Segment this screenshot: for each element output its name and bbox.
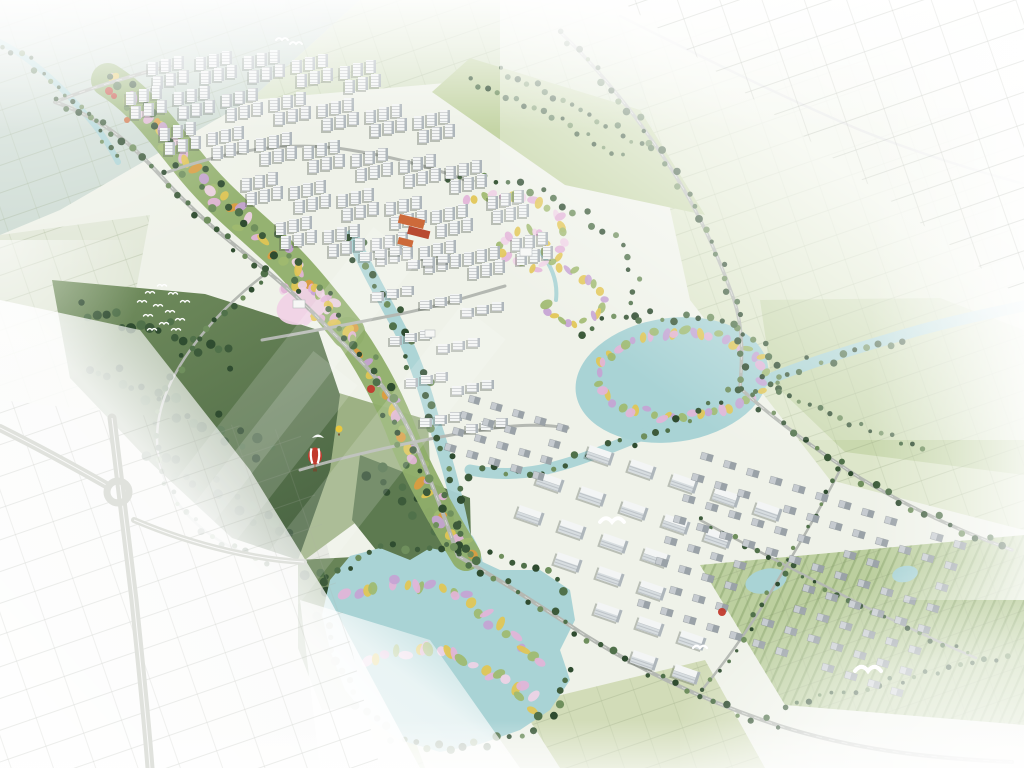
street-tree — [830, 478, 835, 483]
street-tree — [465, 562, 472, 569]
street-tree — [499, 554, 504, 559]
street-tree — [404, 365, 409, 370]
street-tree — [348, 566, 353, 571]
tower-side — [485, 174, 488, 187]
masterplan-aerial-render — [0, 0, 1024, 768]
tower-side — [377, 202, 380, 215]
street-tree — [212, 317, 217, 322]
street-tree — [699, 516, 703, 520]
street-tree — [389, 322, 397, 330]
street-tree — [446, 477, 453, 484]
forest-canopy-dot — [179, 337, 188, 346]
tower-side — [413, 174, 416, 187]
tower-side — [391, 162, 394, 175]
street-tree — [425, 474, 434, 483]
street-tree — [820, 502, 824, 506]
tower-side — [471, 218, 474, 231]
street-tree — [450, 453, 456, 459]
tower-side — [458, 221, 461, 234]
tower-side — [407, 199, 410, 212]
street-tree — [632, 443, 637, 448]
street-tree — [447, 510, 454, 517]
street-tree — [334, 567, 340, 573]
street-tree — [437, 446, 443, 452]
tower-side — [440, 210, 443, 223]
street-tree — [537, 606, 543, 612]
street-tree — [491, 576, 497, 582]
street-tree — [551, 467, 556, 472]
street-tree — [438, 505, 446, 513]
street-tree — [457, 521, 462, 526]
street-tree — [259, 281, 263, 285]
street-tree — [197, 336, 202, 341]
street-tree — [824, 454, 831, 461]
street-tree — [427, 545, 433, 551]
street-tree — [472, 556, 481, 565]
street-tree — [556, 700, 564, 708]
street-tree — [221, 310, 228, 317]
tower-side — [477, 266, 480, 279]
tower-side — [453, 207, 456, 220]
street-tree — [584, 638, 590, 644]
tower-side — [426, 171, 429, 184]
tower-side — [448, 254, 451, 263]
street-tree — [371, 368, 378, 375]
tower-side — [492, 380, 495, 389]
tower-side — [445, 224, 448, 237]
street-tree — [563, 620, 567, 624]
street-tree — [563, 463, 568, 468]
street-tree — [552, 608, 560, 616]
street-tree — [450, 543, 458, 551]
street-tree — [733, 534, 738, 539]
street-tree — [367, 550, 372, 555]
street-tree — [317, 285, 323, 291]
street-tree — [249, 287, 255, 293]
street-tree — [839, 459, 845, 465]
street-tree — [555, 577, 560, 582]
street-tree — [446, 466, 452, 472]
forest-canopy-dot — [206, 340, 215, 349]
tower-side — [397, 289, 400, 298]
street-tree — [661, 674, 666, 679]
street-tree — [462, 545, 470, 553]
street-tree — [504, 472, 509, 477]
tower-side — [386, 148, 389, 161]
forest-canopy-dot — [398, 497, 407, 506]
street-tree — [378, 543, 384, 549]
tower-side — [372, 188, 375, 201]
tower-side — [454, 240, 457, 253]
street-tree — [755, 548, 760, 553]
street-tree — [509, 560, 515, 566]
forest-canopy-dot — [215, 411, 222, 418]
street-tree — [397, 306, 404, 313]
forest-canopy-dot — [225, 345, 233, 353]
forest-canopy-dot — [155, 327, 161, 333]
tower-side — [454, 166, 457, 179]
park-pavilion — [293, 300, 305, 308]
street-tree — [505, 578, 511, 584]
masterplan-scene — [0, 0, 1024, 768]
street-tree — [441, 492, 447, 498]
tower-side — [472, 252, 475, 265]
tower-side — [439, 168, 442, 181]
tower-side — [427, 130, 430, 143]
tower-side — [485, 249, 488, 262]
street-tree — [487, 549, 492, 554]
street-tree — [433, 522, 439, 528]
tower-side — [472, 177, 475, 190]
street-tree — [373, 378, 381, 386]
street-tree — [355, 555, 361, 561]
street-tree — [390, 541, 396, 547]
street-tree — [858, 481, 864, 487]
tower-side — [421, 157, 424, 170]
tower-side — [420, 196, 423, 209]
street-tree — [557, 687, 564, 694]
street-tree — [457, 531, 463, 537]
tower-side — [476, 424, 479, 433]
street-tree — [571, 451, 578, 458]
tower-side — [487, 305, 490, 314]
street-tree — [240, 295, 245, 300]
street-tree — [525, 600, 530, 605]
street-tree — [610, 647, 618, 655]
street-tree — [178, 366, 185, 373]
tower-side — [378, 165, 381, 178]
street-tree — [444, 542, 449, 547]
street-tree — [179, 353, 184, 358]
tower-side — [496, 196, 499, 209]
street-tree — [477, 570, 484, 577]
street-tree — [568, 667, 574, 673]
forest-canopy-dot — [171, 334, 179, 342]
street-tree — [438, 546, 445, 553]
forest-canopy-dot — [399, 483, 407, 491]
balloon-basket — [313, 469, 317, 472]
forest-canopy-dot — [215, 346, 223, 354]
tower-side — [459, 254, 462, 267]
street-tree — [791, 546, 795, 550]
tower-side — [460, 294, 463, 303]
street-tree — [562, 678, 568, 684]
street-tree — [646, 673, 651, 678]
street-tree — [433, 435, 440, 442]
street-tree — [598, 642, 603, 647]
street-tree — [457, 486, 463, 492]
street-tree — [401, 546, 410, 555]
street-tree — [357, 352, 362, 357]
tower-side — [373, 151, 376, 164]
street-tree — [457, 496, 465, 504]
street-tree — [203, 326, 209, 332]
tower-side — [408, 160, 411, 173]
street-tree — [848, 471, 853, 476]
tower-side — [433, 257, 436, 266]
tower-side — [477, 383, 480, 392]
tower-side — [430, 300, 433, 309]
street-tree — [532, 564, 539, 571]
street-tree — [571, 631, 577, 637]
tower-side — [400, 336, 403, 345]
tower-side — [418, 260, 421, 269]
forest-canopy-dot — [408, 511, 417, 520]
street-tree — [387, 383, 395, 391]
street-tree — [190, 346, 196, 352]
street-tree — [521, 563, 527, 569]
street-tree — [373, 354, 379, 360]
tower-side — [434, 154, 437, 167]
tower-side — [459, 180, 462, 193]
tower-side — [445, 297, 448, 306]
tower-side — [498, 246, 501, 259]
street-tree — [545, 567, 552, 574]
forest-canopy-dot — [227, 366, 233, 372]
haze-left — [0, 240, 150, 410]
street-tree — [559, 587, 568, 596]
tower-side — [480, 160, 483, 173]
tower-side — [466, 204, 469, 217]
tower-side — [412, 286, 415, 295]
street-tree — [550, 712, 558, 720]
street-tree — [494, 180, 499, 185]
street-tree — [806, 525, 810, 529]
mini-balloon-basket — [338, 434, 340, 436]
street-tree — [231, 303, 238, 310]
street-tree — [423, 488, 431, 496]
tower-side — [365, 168, 368, 181]
mini-balloon — [336, 426, 343, 433]
tower-side — [467, 163, 470, 176]
park-pavilion — [425, 330, 435, 337]
tower-side — [394, 202, 397, 215]
street-tree — [516, 590, 520, 594]
street-tree — [534, 712, 543, 721]
tower-side — [364, 205, 367, 218]
haze-top-left — [0, 0, 360, 280]
street-tree — [766, 555, 771, 560]
street-tree — [418, 469, 423, 474]
street-tree — [605, 440, 611, 446]
street-tree — [479, 465, 485, 471]
red-accent-feature — [367, 385, 375, 393]
street-tree — [403, 354, 408, 359]
street-tree — [465, 474, 473, 482]
street-tree — [815, 446, 820, 451]
tower-side — [415, 333, 418, 342]
tower-side — [490, 263, 493, 276]
street-tree — [824, 490, 829, 495]
street-tree — [415, 547, 420, 552]
street-tree — [835, 466, 840, 471]
street-tree — [622, 656, 628, 662]
street-tree — [296, 289, 301, 294]
